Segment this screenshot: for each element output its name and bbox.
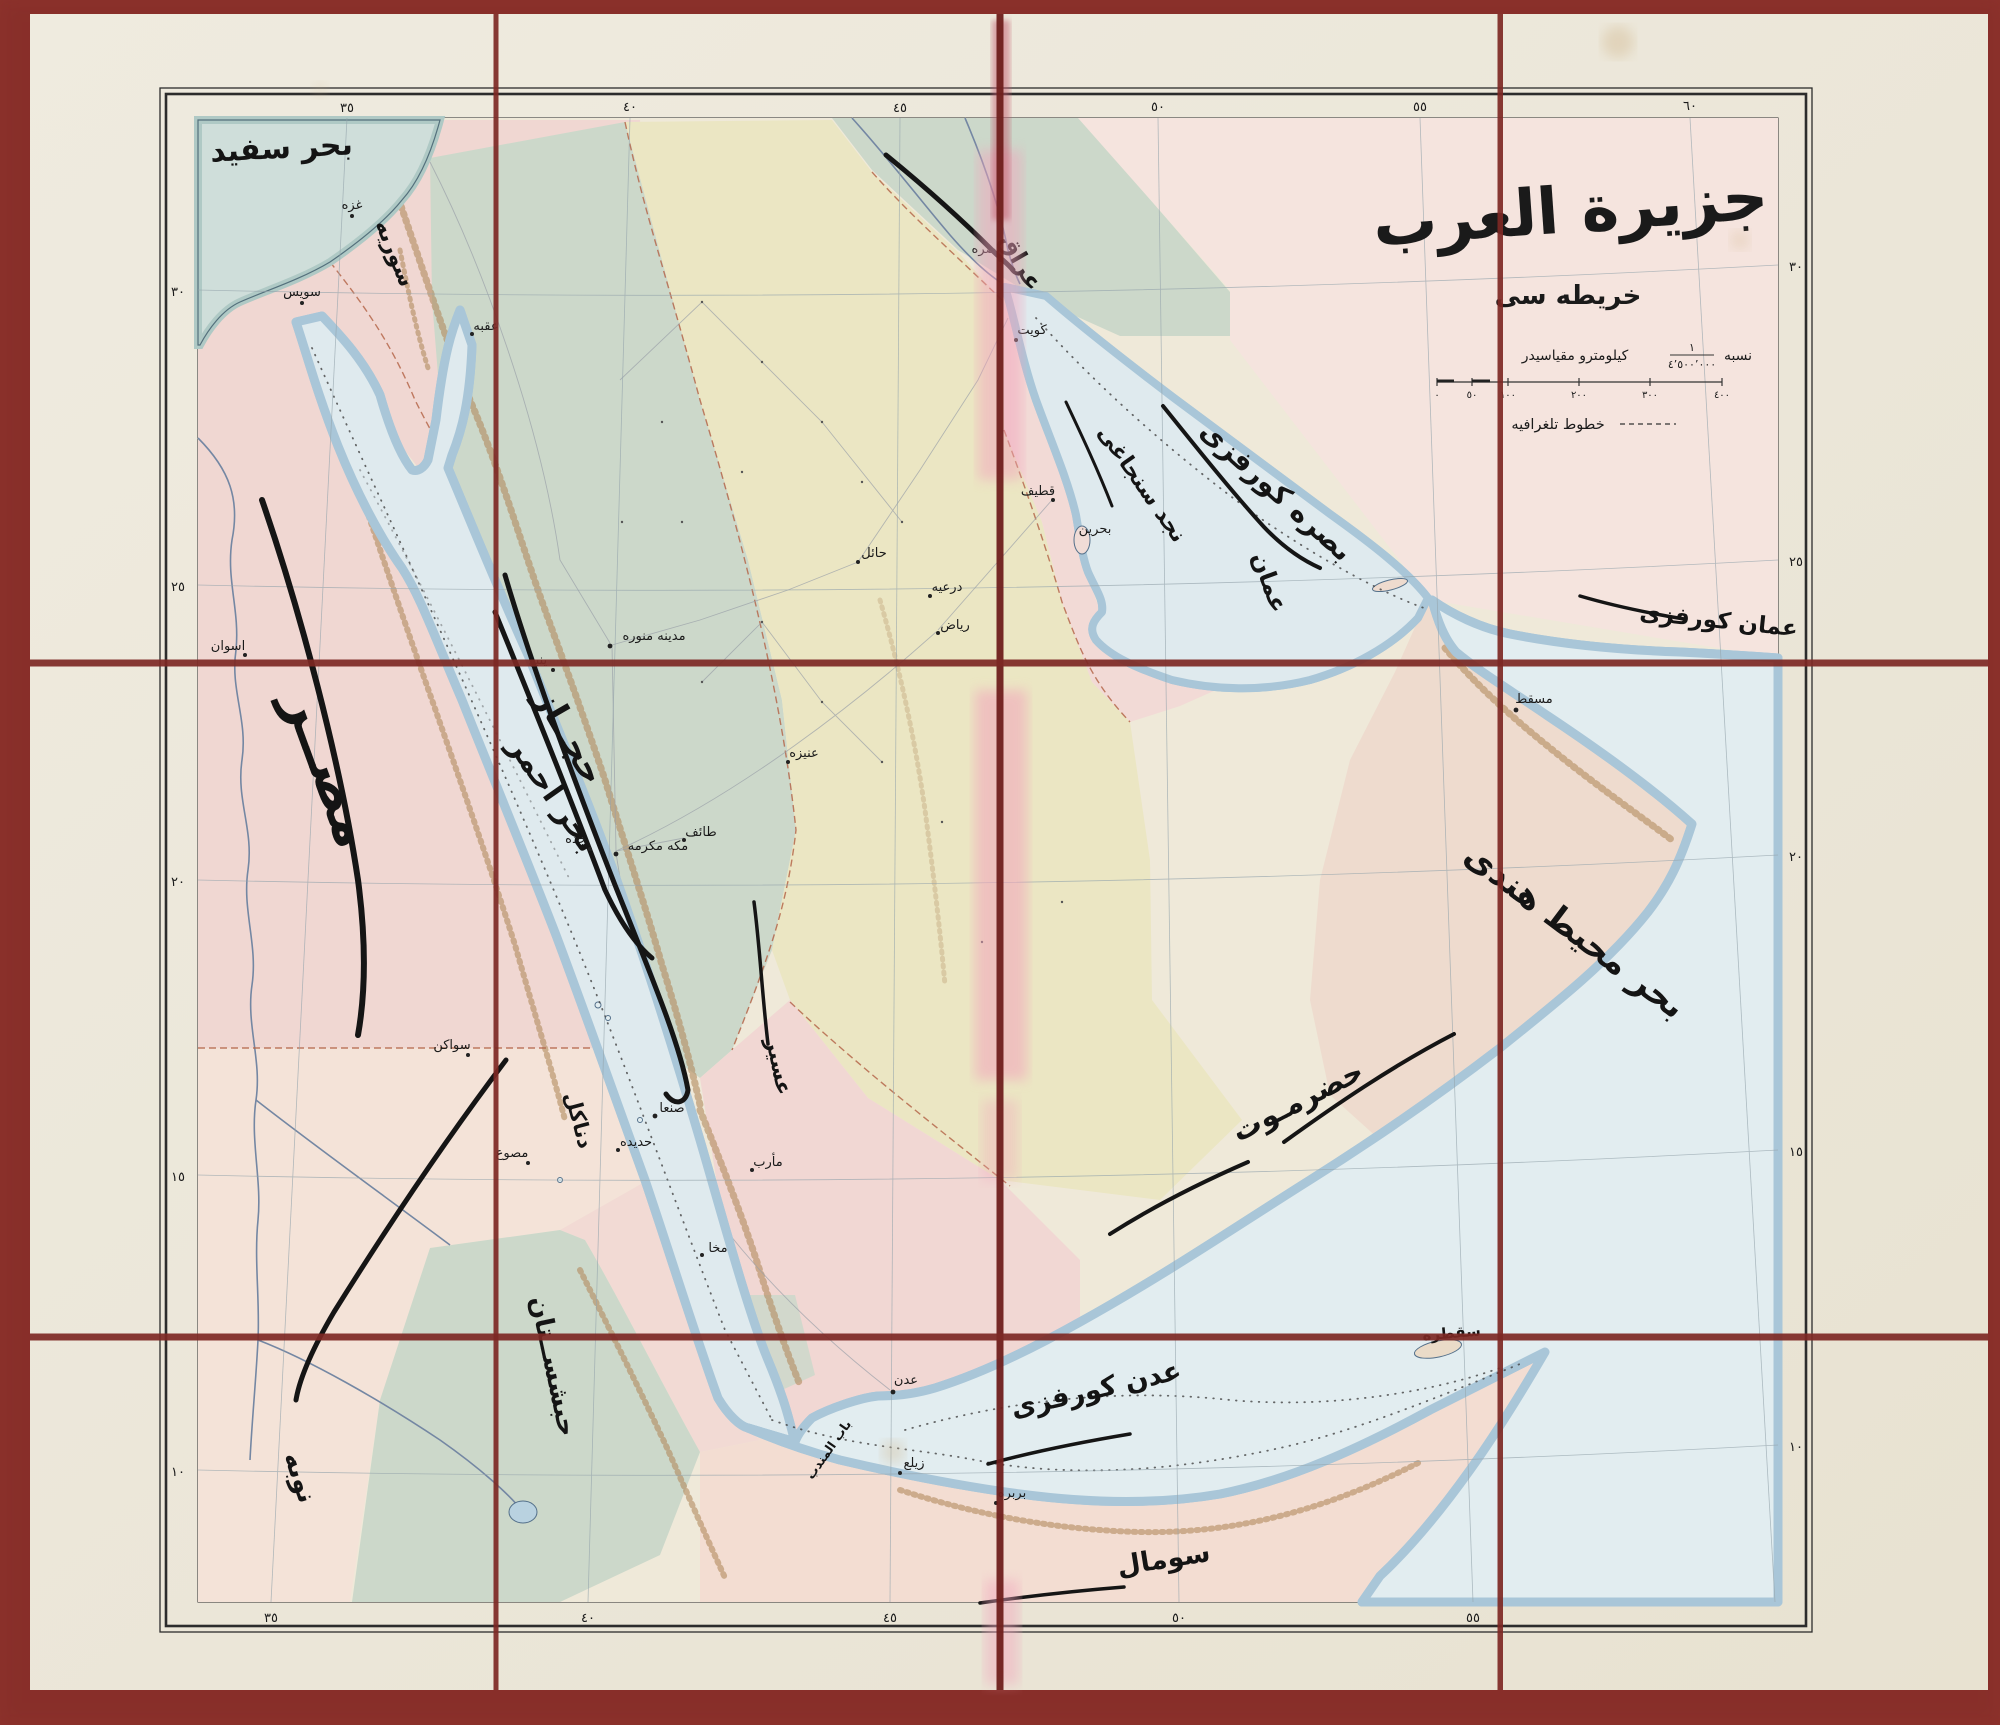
- scale-fraction-numerator: ١: [1689, 341, 1695, 354]
- city-dot: [891, 1390, 896, 1395]
- city-dot: [300, 301, 304, 305]
- lat-label: ١٥: [1789, 1145, 1803, 1160]
- city-label: بحرين: [1079, 522, 1112, 537]
- city-dot: [898, 1471, 902, 1475]
- scale-suffix: كيلومترو مقياسيدر: [1521, 348, 1629, 364]
- city-label: غزه: [342, 198, 363, 213]
- city-label: حائل: [861, 546, 886, 561]
- scale-tick: ٤٠٠: [1714, 390, 1730, 401]
- city-label: درعيه: [932, 580, 963, 595]
- lon-label: ٥٥: [1413, 100, 1427, 115]
- city-dot: [1514, 708, 1519, 713]
- label-mediterranean: بحر سفيد: [209, 127, 353, 169]
- fold-line-horizontal-upper: [30, 660, 1988, 667]
- city-label: قطيف: [1021, 484, 1055, 499]
- map-subtitle: خريطه سى: [1495, 281, 1642, 311]
- fold-line-horizontal-lower: [30, 1334, 1988, 1341]
- city-dot: [700, 1253, 704, 1257]
- lon-label: ٤٥: [883, 1611, 897, 1626]
- lon-label: ٥٥: [1466, 1611, 1480, 1626]
- scale-tick: ٠: [1434, 390, 1439, 401]
- lat-label: ٣٠: [171, 285, 185, 300]
- scale-tick: ٥٠: [1467, 390, 1478, 401]
- lon-label: ٦٠: [1683, 99, 1697, 114]
- lon-label: ٤٠: [581, 1611, 595, 1626]
- city-label: طائف: [685, 825, 716, 840]
- city-dot: [350, 214, 354, 218]
- city-label: زيلع: [903, 1456, 924, 1471]
- map-canvas: ٣٥ ٤٠ ٤٥ ٥٠ ٥٥ ٦٠ ٣٥ ٤٠ ٤٥ ٥٠ ٥٥ ٣٠ ٢٥ ٢…: [0, 0, 2000, 1725]
- city-dot: [856, 560, 860, 564]
- city-dot: [466, 1053, 470, 1057]
- city-label: عنيزه: [789, 746, 819, 761]
- city-label: عدن: [894, 1373, 918, 1388]
- city-label: حديده: [620, 1135, 652, 1150]
- fold-line-vertical-middle: [997, 14, 1004, 1690]
- lat-label: ١٠: [1789, 1440, 1803, 1455]
- city-label: اسوان: [211, 639, 245, 654]
- city-label: سويس: [283, 285, 321, 300]
- city-label: رياض: [940, 618, 970, 633]
- island-kamaran: [638, 1118, 643, 1123]
- lon-label: ٤٠: [623, 100, 637, 115]
- lat-label: ١٥: [171, 1170, 185, 1185]
- lat-label: ٣٠: [1789, 260, 1803, 275]
- scale-tick: ٢٠٠: [1571, 390, 1587, 401]
- city-label: مدينه منوره: [622, 629, 685, 644]
- city-dot: [588, 847, 592, 851]
- city-label: مسقط: [1515, 692, 1552, 707]
- city-label: مخا: [708, 1241, 727, 1256]
- fold-line-vertical-left: [494, 14, 499, 1690]
- scale-prefix: نسبه: [1724, 348, 1752, 364]
- city-label: مكه مكرمه: [628, 839, 689, 854]
- city-dot: [608, 644, 613, 649]
- fold-line-vertical-right: [1498, 14, 1504, 1690]
- scale-tick: ٣٠٠: [1642, 390, 1658, 401]
- city-label: صنعا: [659, 1101, 684, 1116]
- scale-fraction-denominator: ٤٬٥٠٠٬٠٠٠: [1668, 358, 1716, 371]
- city-label: مأرب: [753, 1152, 782, 1170]
- island-farasan-2: [606, 1016, 611, 1021]
- lon-label: ٥٠: [1172, 1611, 1186, 1626]
- city-label: مصوع: [496, 1146, 529, 1161]
- lat-label: ٢٠: [1789, 850, 1803, 865]
- city-dot: [551, 668, 555, 672]
- lon-label: ٣٥: [340, 101, 354, 116]
- lon-label: ٤٥: [893, 101, 907, 116]
- lat-label: ٢٠: [171, 875, 185, 890]
- lon-label: ٣٥: [264, 1611, 278, 1626]
- city-label: سواكن: [433, 1038, 470, 1053]
- lat-label: ٢٥: [171, 580, 185, 595]
- city-label: جده: [565, 832, 587, 847]
- telegraph-legend-label: خطوط تلغرافيه: [1511, 417, 1604, 433]
- city-dot: [653, 1114, 658, 1119]
- city-dot: [526, 1161, 530, 1165]
- ottoman-arabia-map-sheet: ٣٥ ٤٠ ٤٥ ٥٠ ٥٥ ٦٠ ٣٥ ٤٠ ٤٥ ٥٠ ٥٥ ٣٠ ٢٥ ٢…: [0, 0, 2000, 1725]
- lake-tana: [509, 1501, 537, 1523]
- lat-label: ٢٥: [1789, 555, 1803, 570]
- lat-label: ١٠: [171, 1465, 185, 1480]
- city-dot: [614, 852, 619, 857]
- lon-label: ٥٠: [1151, 100, 1165, 115]
